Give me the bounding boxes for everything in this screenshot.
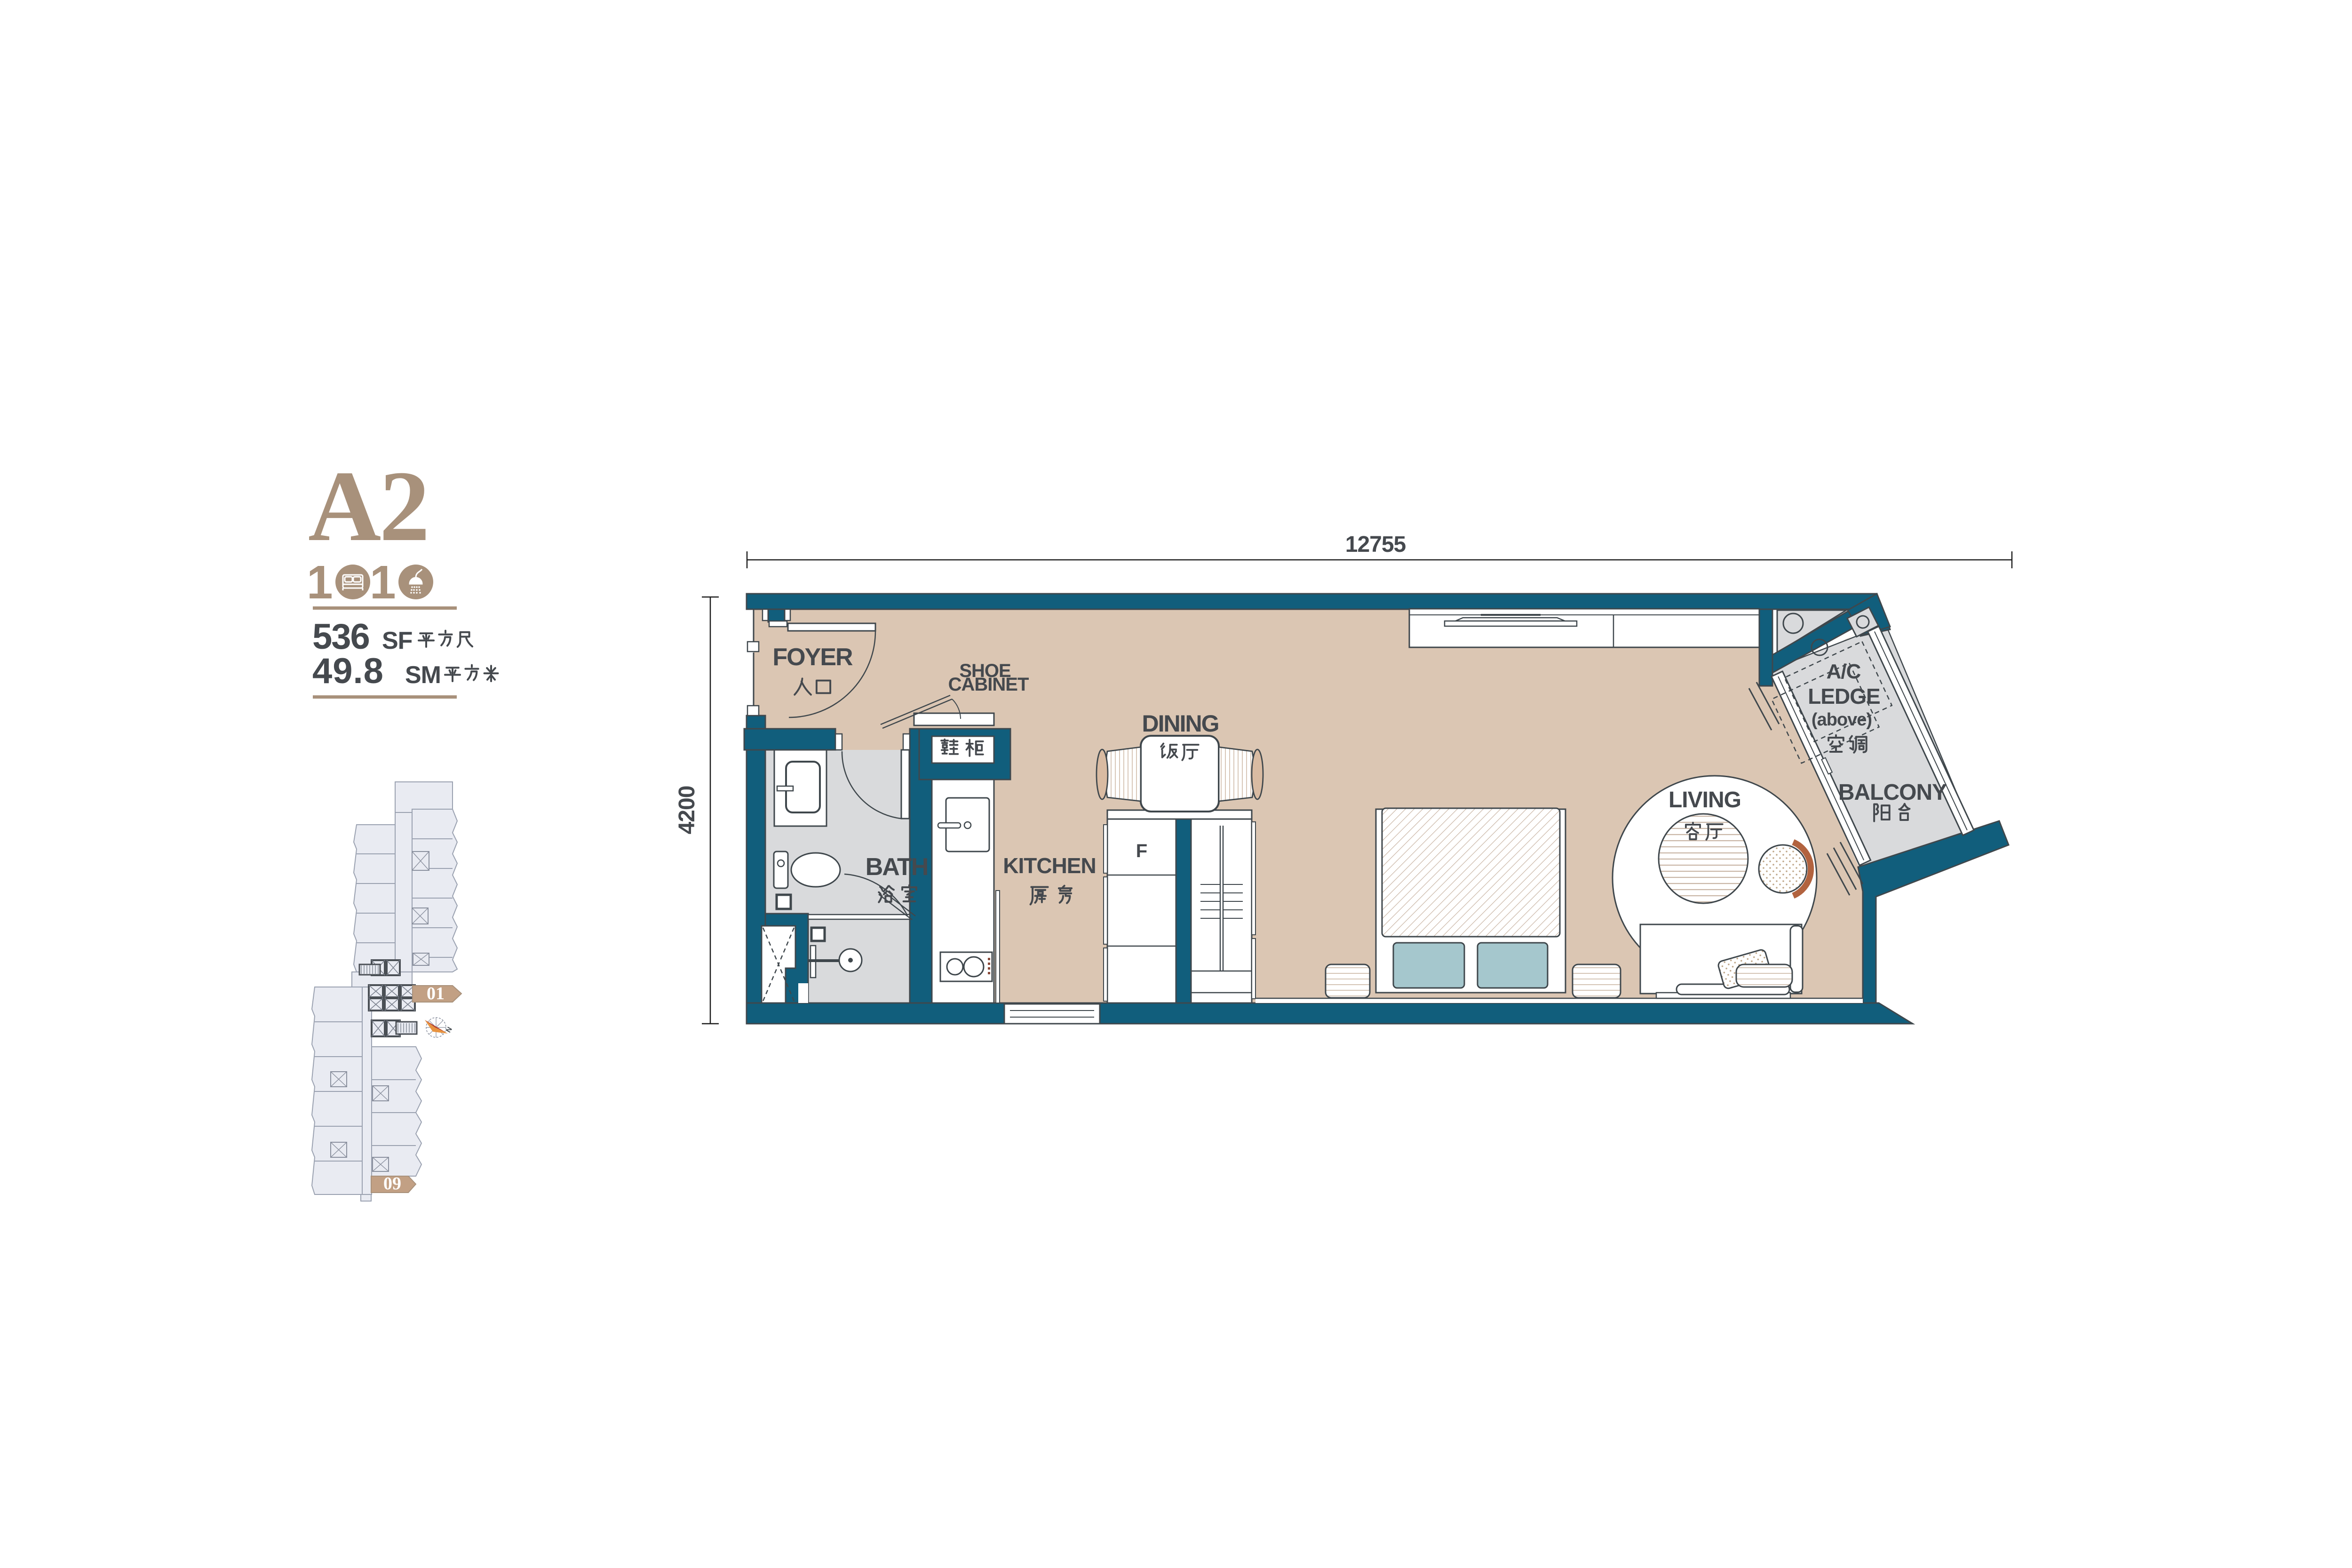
svg-text:4200: 4200 xyxy=(675,786,699,835)
svg-text:SM: SM xyxy=(405,661,441,689)
svg-text:01: 01 xyxy=(427,984,445,1003)
svg-text:1: 1 xyxy=(370,556,396,609)
svg-text:49.8: 49.8 xyxy=(312,651,384,691)
svg-text:A2: A2 xyxy=(308,450,428,562)
svg-text:BALCONY: BALCONY xyxy=(1838,780,1947,805)
svg-text:12755: 12755 xyxy=(1345,532,1406,557)
svg-text:09: 09 xyxy=(383,1174,401,1194)
svg-text:(above): (above) xyxy=(1812,710,1872,730)
svg-text:LEDGE: LEDGE xyxy=(1808,684,1880,708)
svg-text:DINING: DINING xyxy=(1142,710,1219,737)
svg-text:CABINET: CABINET xyxy=(948,674,1029,695)
svg-text:LIVING: LIVING xyxy=(1669,788,1741,812)
svg-text:A/C: A/C xyxy=(1827,660,1861,683)
svg-text:BATH: BATH xyxy=(866,853,928,881)
svg-text:KITCHEN: KITCHEN xyxy=(1003,853,1096,878)
svg-text:F: F xyxy=(1136,841,1147,861)
svg-text:SF: SF xyxy=(382,627,412,654)
svg-text:FOYER: FOYER xyxy=(772,644,853,671)
svg-text:1: 1 xyxy=(307,556,333,609)
